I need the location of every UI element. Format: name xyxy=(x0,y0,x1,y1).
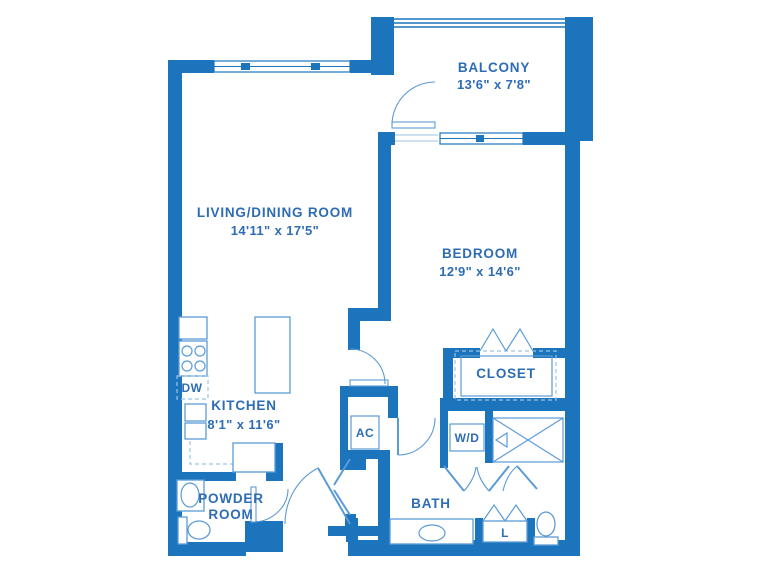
wd-door-right-leaf xyxy=(489,466,509,491)
wall-bath-left xyxy=(378,450,390,542)
linen-label: L xyxy=(501,526,509,540)
ac-label: AC xyxy=(356,426,374,440)
wall-balcony-right xyxy=(565,17,593,141)
wall-linen-left xyxy=(475,518,483,544)
wall-wd-shower-divider xyxy=(485,411,493,463)
closet-label: CLOSET xyxy=(476,366,536,381)
counter-icon xyxy=(233,443,275,472)
wd-door-right-arc xyxy=(477,467,489,491)
wall-wd-left xyxy=(440,411,448,468)
kitchen-dims: 8'1" x 11'6" xyxy=(207,417,280,432)
bath-label: BATH xyxy=(411,496,451,511)
bifold-door-icon xyxy=(480,329,506,351)
balcony-label: BALCONY xyxy=(458,60,530,75)
living-window-mullion xyxy=(241,63,250,70)
doors xyxy=(251,82,537,524)
shower-head-icon xyxy=(496,433,507,447)
entry-door-arc xyxy=(285,468,318,524)
cabinet-icon xyxy=(185,423,206,439)
living-window-mullion xyxy=(311,63,320,70)
balcony-dims: 13'6" x 7'8" xyxy=(457,77,531,92)
wall-kitchen-stub xyxy=(275,443,283,473)
floor-plan: BALCONY 13'6" x 7'8" LIVING/DINING ROOM … xyxy=(0,0,764,573)
balcony-door-leaf xyxy=(392,122,435,128)
balcony-door-arc xyxy=(392,82,435,125)
powder-label-line1: POWDER xyxy=(198,491,264,506)
wall-top-left-segment xyxy=(168,60,214,73)
wall-right xyxy=(565,140,580,556)
bath-vanity xyxy=(390,519,473,544)
bedroom-door-arc xyxy=(350,349,385,384)
powder-toilet-tank xyxy=(178,517,187,544)
wd-door-left-leaf xyxy=(444,466,464,491)
bath-door-arc xyxy=(398,418,435,455)
bedroom-label: BEDROOM xyxy=(442,246,518,261)
entry-door-leaf xyxy=(318,468,350,524)
linen-door-icon xyxy=(505,505,527,521)
wall-powder-corner xyxy=(245,521,283,552)
living-label: LIVING/DINING ROOM xyxy=(197,205,353,220)
walls xyxy=(168,17,593,556)
washer-dryer-label: W/D xyxy=(455,431,480,445)
powder-label-line2: ROOM xyxy=(208,507,253,522)
powder-toilet-icon xyxy=(188,521,210,539)
floor-plan-svg: BALCONY 13'6" x 7'8" LIVING/DINING ROOM … xyxy=(0,0,764,573)
bedroom-closet xyxy=(455,329,556,400)
bifold-door-icon xyxy=(506,329,533,351)
bedroom-dims: 12'9" x 14'6" xyxy=(439,264,521,279)
bedroom-door-leaf xyxy=(350,380,388,386)
wall-balcony-divider xyxy=(371,17,394,75)
counter-edge xyxy=(190,441,235,464)
wall-jog-vertical xyxy=(348,308,360,350)
fridge-icon xyxy=(179,317,207,339)
wd-door-left-arc xyxy=(464,467,476,491)
wall-living-bedroom-divider xyxy=(378,132,391,317)
linen-door-icon xyxy=(483,505,505,521)
dishwasher-label: DW xyxy=(182,381,203,395)
shower-door-leaf xyxy=(517,466,537,489)
bath-toilet-icon xyxy=(537,512,555,536)
living-dims: 14'11" x 17'5" xyxy=(231,223,319,238)
bedroom-window-mullion xyxy=(476,135,484,142)
cabinet-icon xyxy=(185,404,206,421)
bath-toilet-tank xyxy=(534,537,558,545)
kitchen-label: KITCHEN xyxy=(211,398,277,413)
wall-ac-right xyxy=(388,386,398,418)
kitchen-island xyxy=(255,317,290,393)
